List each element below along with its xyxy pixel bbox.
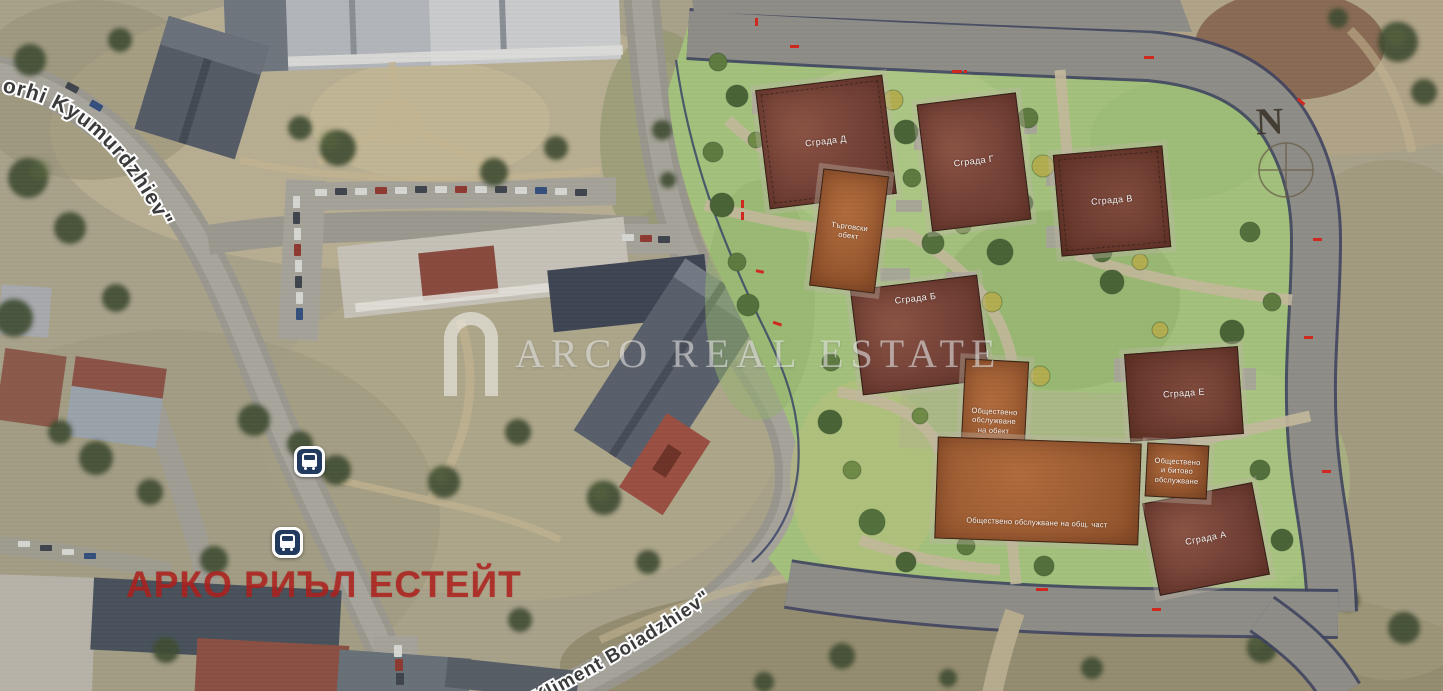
building-label: Сграда Д: [801, 133, 852, 151]
building-label: Сграда Г: [949, 153, 999, 171]
building-label: Сграда А: [1180, 529, 1231, 550]
bus-stop-icon[interactable]: [294, 446, 325, 477]
building-label: Обществено обслужване на общ. част: [962, 515, 1111, 530]
building-label: Сграда В: [1087, 193, 1138, 209]
compass-rose-icon: [1258, 142, 1314, 198]
building-label: Сграда Е: [1159, 386, 1209, 401]
watermark-arco-cyrillic: АРКО РИЪЛ ЕСТЕЙТ: [126, 564, 522, 606]
bus-glyph: [280, 534, 295, 548]
building-label: Търговски обект: [816, 218, 882, 244]
plan-building-v: Сграда В: [1053, 145, 1171, 256]
compass-north-label: N: [1255, 100, 1284, 145]
bus-stop-icon[interactable]: [272, 527, 303, 558]
arco-logo-arch-icon: [444, 312, 498, 396]
building-label: Обществено обслужване на обект: [962, 405, 1025, 436]
plan-building-g: Сграда Г: [917, 92, 1032, 231]
building-label: Обществено и битово обслужване: [1146, 455, 1207, 486]
map-canvas: Сграда Д Сграда Г Сграда В Сграда Б Сгра…: [0, 0, 1443, 691]
plan-building-e: Сграда Е: [1124, 346, 1244, 442]
building-label: Сграда Б: [890, 290, 941, 308]
plan-building-service-2: Обществено обслужване на общ. част: [934, 436, 1141, 545]
watermark-arco-real-estate: ARCO REAL ESTATE: [515, 330, 1002, 377]
bus-glyph: [302, 453, 317, 467]
plan-building-service-3: Обществено и битово обслужване: [1145, 442, 1210, 499]
